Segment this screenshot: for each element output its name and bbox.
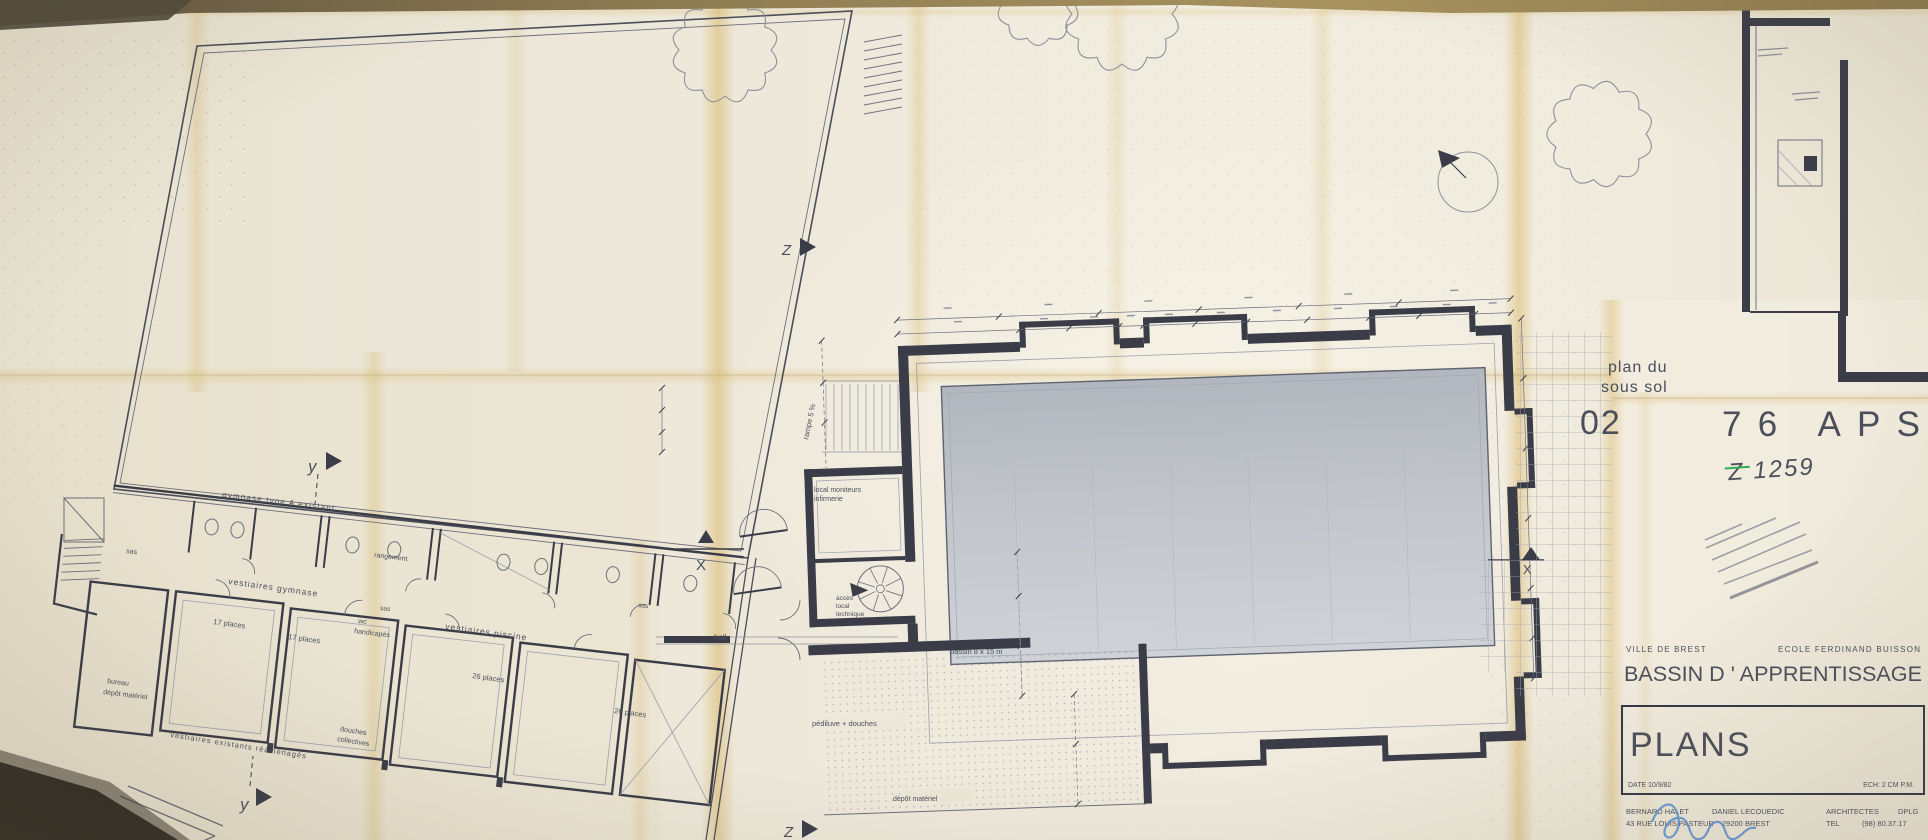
vignette xyxy=(0,0,1928,840)
plan-drawing-canvas: gymnase type A existantsasvestiaires gym… xyxy=(0,0,1928,840)
photographed-architectural-plan: gymnase type A existantsasvestiaires gym… xyxy=(0,0,1928,840)
